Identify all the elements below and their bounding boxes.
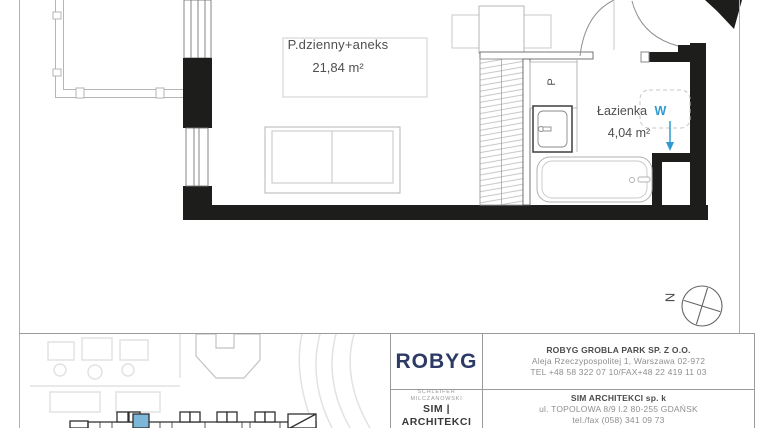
sofa [265,127,400,193]
shaft-opening [662,162,690,205]
developer-phone: TEL +48 58 322 07 10/FAX+48 22 419 11 03 [530,367,706,378]
bathroom-name: Łazienka [597,104,647,118]
hatched-strip [480,59,523,205]
bathroom-top-wall [480,52,593,59]
developer-logo-cell: ROBYG [391,334,482,389]
north-compass-icon [682,286,722,326]
vent-arrow-icon [666,121,674,151]
balcony-railing [53,0,183,98]
living-room-area: 21,84 m² [276,60,400,75]
floor-plan-sheet: P.dzienny+aneks 21,84 m² Łazienka W 4,04… [0,0,760,428]
bathroom-label: Łazienka W [597,104,666,118]
site-highlighted-unit [133,414,149,428]
architect-info-cell: SIM ARCHITEKCI sp. k ul. TOPOLOWA 8/9 l.… [483,390,754,428]
plan-right-border [739,0,740,333]
living-room-label: P.dzienny+aneks 21,84 m² [276,37,400,75]
bathroom-area: 4,04 m² [599,126,659,140]
living-room-name: P.dzienny+aneks [276,37,400,52]
bathroom-left-wall [523,59,530,205]
architect-company: SIM ARCHITEKCI sp. k [571,393,666,404]
bathtub [537,157,652,202]
dining-set [452,6,551,53]
architect-logo-top: SCHLEIFER MILCZANOWSKI [391,389,482,403]
developer-address: Aleja Rzeczypospolitej 1, Warszawa 02-97… [532,356,705,367]
bathroom-shaft-label: W [655,104,667,118]
entrance-arrow-icon [705,0,742,29]
architect-address: ul. TOPOLOWA 8/9 l.2 80-255 GDAŃSK [539,404,698,415]
footer-right-border [754,333,755,428]
architect-logo-cell: SCHLEIFER MILCZANOWSKI SIM | ARCHITEKCI [391,390,482,428]
architect-phone: tel./fax (058) 341 09 73 [572,415,664,426]
site-building [70,412,316,428]
site-plan [20,334,390,428]
window-lower [186,128,208,186]
site-courtyard [196,334,260,378]
architect-logo: SIM | ARCHITEKCI [391,403,482,428]
washer-label: P [546,75,558,89]
developer-company: ROBYG GROBLA PARK SP. Z O.O. [546,345,690,356]
washbasin [533,106,572,152]
window-upper [184,0,211,58]
compass-north-label: N [663,290,678,306]
developer-info-cell: ROBYG GROBLA PARK SP. Z O.O. Aleja Rzecz… [483,334,754,389]
developer-logo: ROBYG [395,350,477,374]
